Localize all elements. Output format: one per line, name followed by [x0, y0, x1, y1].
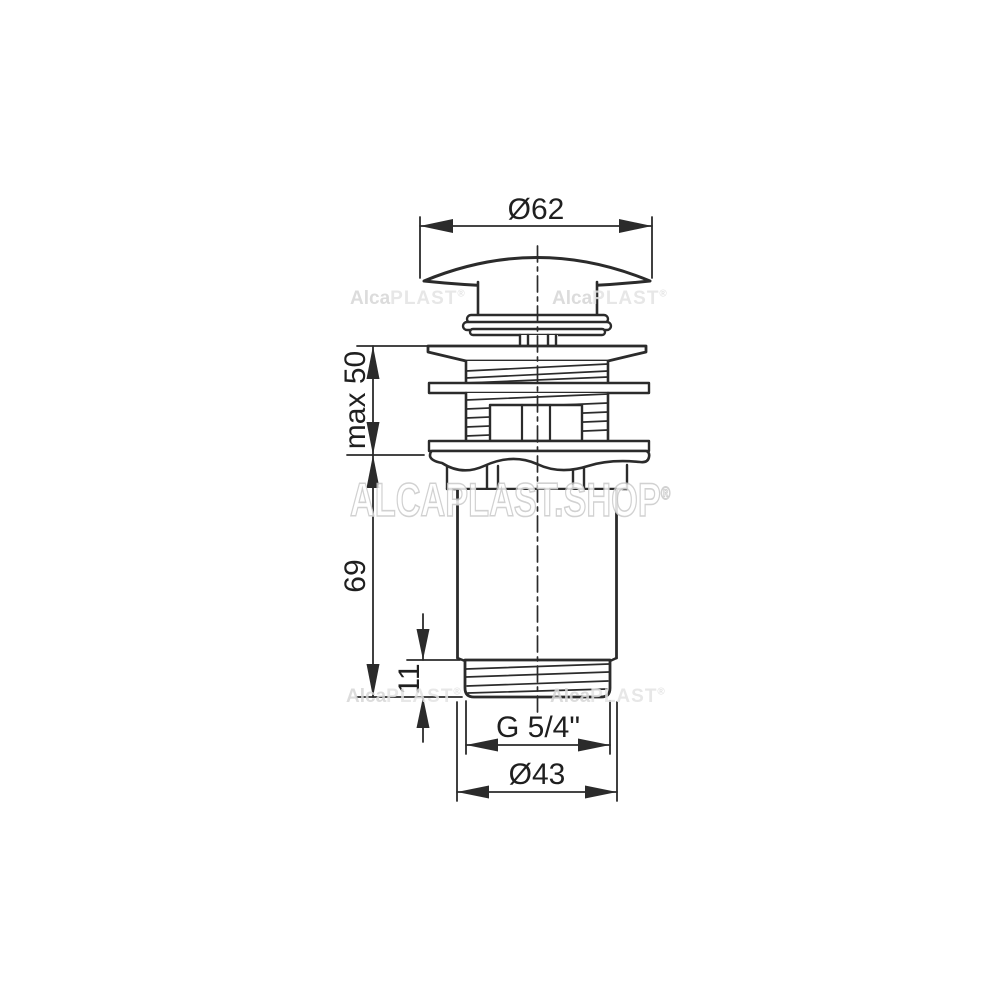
cap-neck [519, 335, 558, 346]
technical-drawing-canvas: Ø62 max 50 69 11 G 5/4" Ø43 AlcaPLAST® A… [0, 0, 1000, 1000]
dimension-label-outlet-diameter: Ø43 [509, 758, 566, 791]
dimension-label-outlet-thread: G 5/4" [496, 711, 580, 744]
dimension-label-thread-length: 11 [393, 663, 426, 694]
dimension-label-clamp-range: max 50 [339, 351, 372, 449]
bottom-washer [429, 441, 649, 451]
overflow-window [490, 405, 582, 441]
mid-washer [429, 383, 649, 393]
dimension-label-cap-diameter: Ø62 [508, 193, 565, 226]
valve-drawing: Ø62 max 50 69 11 G 5/4" Ø43 [0, 0, 1000, 1000]
dimension-label-body-length: 69 [339, 559, 372, 592]
